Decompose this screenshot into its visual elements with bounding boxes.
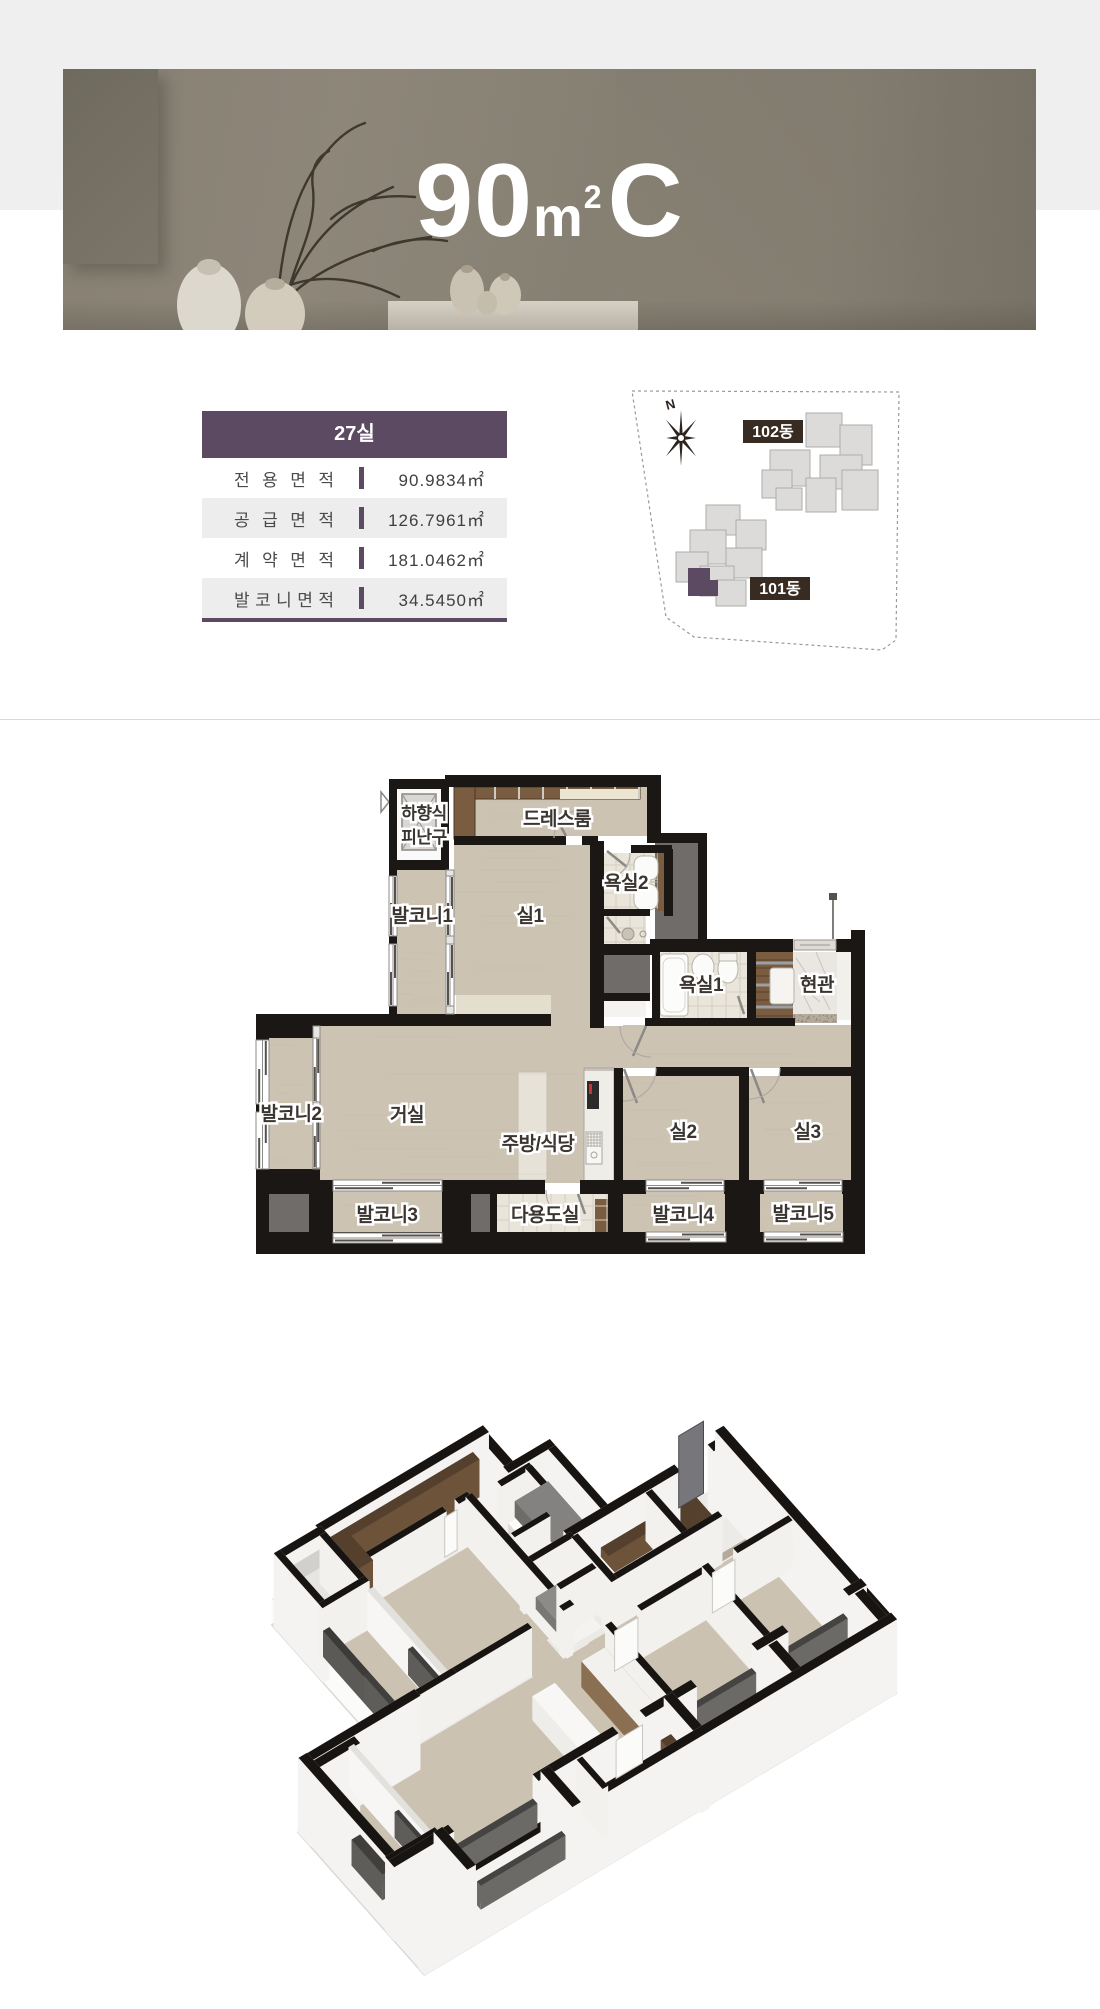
svg-text:실1: 실1: [516, 905, 544, 927]
svg-text:102동: 102동: [752, 423, 794, 441]
svg-text:욕실1: 욕실1: [679, 974, 724, 996]
svg-text:발코니3: 발코니3: [356, 1204, 417, 1226]
svg-text:주방/식당: 주방/식당: [502, 1133, 576, 1155]
svg-text:101동: 101동: [759, 580, 801, 598]
svg-text:실3: 실3: [793, 1121, 820, 1143]
svg-text:현관: 현관: [800, 974, 835, 996]
svg-text:발코니5: 발코니5: [772, 1203, 834, 1225]
svg-text:발코니2: 발코니2: [260, 1103, 321, 1125]
svg-text:발코니1: 발코니1: [391, 905, 453, 927]
svg-text:다용도실: 다용도실: [511, 1204, 579, 1226]
svg-text:피난구: 피난구: [401, 828, 447, 847]
svg-text:드레스룸: 드레스룸: [523, 808, 591, 830]
svg-text:욕실2: 욕실2: [604, 872, 648, 894]
svg-text:하향식: 하향식: [401, 803, 446, 823]
svg-text:발코니4: 발코니4: [652, 1204, 714, 1226]
svg-text:실2: 실2: [669, 1121, 696, 1143]
svg-text:거실: 거실: [390, 1104, 424, 1126]
